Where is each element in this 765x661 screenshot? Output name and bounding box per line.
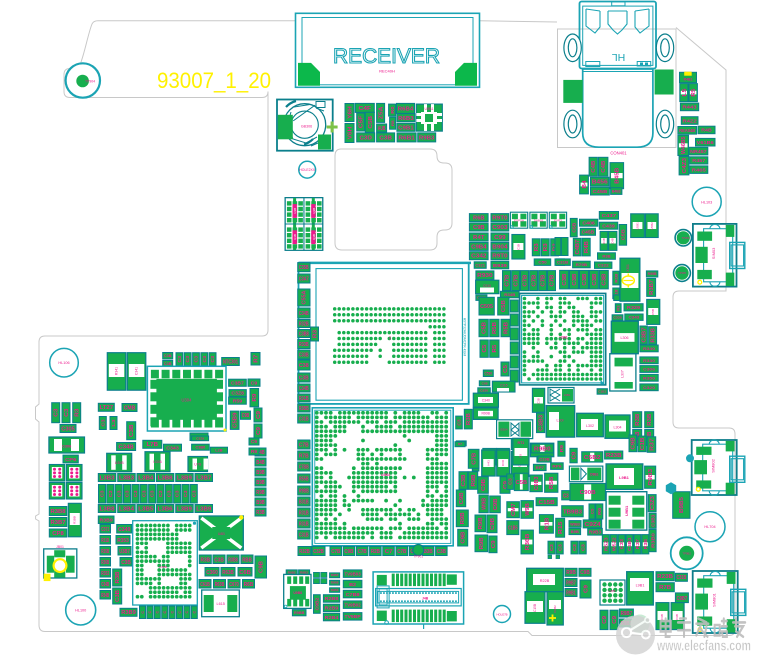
svg-text:L3B9: L3B9 [196, 506, 211, 512]
svg-text:R63B: R63B [215, 582, 225, 588]
svg-text:R1B: R1B [544, 518, 550, 531]
svg-text:C3: C3 [177, 355, 182, 362]
svg-text:C9: C9 [602, 616, 608, 624]
svg-text:SIM802: SIM802 [710, 458, 715, 473]
svg-text:C3: C3 [185, 355, 190, 362]
svg-text:C4Z3: C4Z3 [682, 158, 688, 174]
svg-text:C3: C3 [101, 419, 107, 427]
svg-text:R9B: R9B [471, 474, 477, 486]
svg-text:C7B: C7B [472, 453, 478, 465]
svg-text:Z5A: Z5A [379, 107, 385, 120]
svg-text:R3: R3 [313, 330, 319, 338]
svg-text:C5B2: C5B2 [584, 455, 601, 461]
svg-text:R5: R5 [492, 345, 498, 353]
svg-text:R7: R7 [458, 442, 463, 446]
svg-text:R3BB: R3BB [299, 406, 309, 412]
svg-text:CON401: CON401 [610, 151, 627, 156]
svg-text:L7B: L7B [147, 442, 159, 448]
svg-text:C343: C343 [629, 316, 640, 320]
svg-text:C5B: C5B [368, 116, 374, 129]
svg-text:C3: C3 [194, 355, 199, 362]
svg-text:C3B: C3B [602, 238, 606, 244]
svg-text:R7B: R7B [659, 585, 671, 591]
svg-text:U4B4: U4B4 [381, 473, 390, 477]
svg-text:C34B: C34B [101, 582, 109, 588]
svg-text:R9B7: R9B7 [621, 611, 633, 617]
svg-text:C9B: C9B [493, 498, 499, 510]
svg-text:C321: C321 [475, 264, 485, 268]
svg-text:R31B: R31B [299, 522, 309, 528]
svg-text:B9B: B9B [256, 500, 265, 506]
svg-text:C32B: C32B [313, 549, 324, 555]
svg-text:B9B: B9B [256, 470, 265, 476]
svg-text:U3B: U3B [293, 234, 297, 240]
svg-text:C3B: C3B [214, 557, 224, 563]
svg-text:C306: C306 [643, 367, 656, 372]
svg-text:R4B: R4B [701, 128, 712, 133]
svg-text:C9: C9 [256, 427, 262, 435]
svg-text:R457: R457 [692, 158, 706, 163]
svg-text:C19B: C19B [539, 457, 550, 461]
svg-text:R32B: R32B [299, 321, 309, 327]
svg-text:C340: C340 [482, 399, 490, 403]
svg-text:W46B5: W46B5 [681, 137, 687, 154]
svg-text:U306: U306 [153, 460, 162, 464]
svg-text:C3: C3 [557, 544, 562, 551]
svg-text:RT1: RT1 [518, 441, 525, 445]
svg-text:B4: B4 [582, 180, 588, 188]
svg-text:REA04B: REA04B [679, 128, 696, 134]
svg-text:R37: R37 [635, 539, 640, 550]
svg-text:R9B: R9B [478, 517, 484, 529]
svg-text:R3B: R3B [635, 414, 641, 426]
svg-text:B456: B456 [592, 180, 608, 186]
svg-text:C3B: C3B [517, 244, 521, 250]
svg-text:HOLE2XX: HOLE2XX [299, 168, 315, 172]
svg-text:R55B: R55B [299, 477, 309, 483]
svg-text:L3B6: L3B6 [158, 506, 173, 512]
svg-text:RECEIVER: RECEIVER [333, 44, 440, 68]
svg-text:C9B: C9B [675, 614, 679, 620]
svg-text:R2B4: R2B4 [325, 615, 339, 620]
svg-text:B4B: B4B [256, 460, 265, 466]
svg-text:TP305: TP305 [678, 271, 686, 275]
svg-text:W9B: W9B [525, 503, 531, 516]
svg-text:C9B: C9B [461, 531, 467, 543]
svg-text:R8: R8 [391, 120, 395, 126]
svg-text:R3B: R3B [643, 538, 648, 549]
svg-text:C3: C3 [166, 490, 171, 497]
svg-text:U9B1: U9B1 [425, 107, 434, 111]
svg-text:C7B: C7B [522, 274, 528, 286]
svg-text:C343: C343 [166, 445, 179, 450]
svg-text:C: C [185, 610, 189, 613]
svg-text:C5B: C5B [621, 229, 627, 241]
svg-text:C9B: C9B [344, 549, 353, 555]
svg-text:B3B: B3B [424, 549, 433, 555]
svg-text:C61B: C61B [200, 582, 210, 588]
svg-text:C5F: C5F [359, 115, 365, 128]
svg-text:R4T: R4T [473, 235, 486, 241]
svg-text:R341: R341 [114, 367, 118, 375]
svg-text:C9: C9 [251, 439, 258, 444]
svg-text:C5B: C5B [501, 300, 507, 312]
svg-text:R79B: R79B [576, 263, 588, 267]
svg-text:C360: C360 [206, 570, 218, 576]
svg-text:C9B: C9B [631, 437, 637, 449]
svg-text:C3: C3 [210, 355, 215, 362]
svg-text:C9B: C9B [481, 479, 487, 491]
svg-text:C7B8: C7B8 [346, 592, 360, 597]
svg-text:R15: R15 [558, 522, 564, 535]
svg-text:HL106: HL106 [58, 361, 69, 365]
svg-text:C670: C670 [229, 582, 239, 588]
svg-text:C4B: C4B [601, 161, 607, 173]
svg-text:R9B3: R9B3 [589, 529, 602, 534]
svg-text:R340: R340 [643, 346, 656, 351]
svg-text:C338: C338 [613, 316, 622, 320]
svg-text:C3B: C3B [602, 273, 608, 285]
svg-text:RP6: RP6 [552, 464, 562, 469]
svg-text:U3B: U3B [312, 234, 316, 240]
svg-text:R5: R5 [691, 89, 697, 97]
svg-text:C55A: C55A [302, 290, 308, 304]
svg-text:C9B1: C9B1 [398, 125, 414, 131]
svg-text:TV9B02: TV9B02 [345, 602, 361, 607]
svg-text:R6B: R6B [473, 216, 485, 222]
svg-text:C5: C5 [482, 345, 488, 353]
svg-text:R465: R465 [692, 167, 706, 172]
svg-text:L9B1: L9B1 [564, 393, 571, 397]
svg-text:C3B: C3B [379, 136, 392, 142]
svg-text:V6H: V6H [348, 127, 354, 140]
svg-text:TP304: TP304 [682, 236, 690, 240]
svg-text:R9B3: R9B3 [419, 136, 435, 142]
svg-text:R9BB: R9BB [294, 611, 305, 615]
svg-text:C342: C342 [471, 254, 487, 260]
svg-text:C3B: C3B [164, 354, 172, 358]
svg-text:C341: C341 [134, 367, 138, 375]
svg-text:C3: C3 [108, 490, 113, 497]
svg-text:W9B3: W9B3 [570, 521, 580, 526]
svg-text:R0: R0 [390, 106, 396, 114]
svg-text:C3B: C3B [437, 549, 446, 555]
svg-text:C3: C3 [125, 490, 130, 497]
svg-text:C9: C9 [251, 380, 258, 385]
svg-text:R59: R59 [233, 398, 243, 403]
svg-text:R3B8: R3B8 [51, 509, 66, 515]
svg-text:C3: C3 [563, 493, 569, 499]
svg-text:C9B: C9B [242, 413, 250, 419]
svg-text:B2: B2 [349, 582, 356, 587]
svg-text:R9B7: R9B7 [331, 574, 339, 577]
svg-text:R9BB: R9BB [299, 489, 309, 495]
svg-text:C3: C3 [54, 409, 60, 417]
svg-text:C322: C322 [598, 264, 609, 268]
svg-text:B904: B904 [492, 244, 507, 250]
svg-text:L30I: L30I [557, 419, 564, 423]
svg-text:R9T0: R9T0 [492, 254, 507, 260]
svg-text:L302: L302 [586, 424, 594, 428]
svg-text:R31B: R31B [299, 396, 309, 402]
svg-text:C4B: C4B [611, 238, 615, 244]
svg-text:R90B: R90B [481, 412, 490, 416]
svg-text:B9B: B9B [256, 480, 265, 486]
svg-text:R3B8: R3B8 [228, 557, 238, 563]
svg-text:R31D: R31D [101, 538, 109, 544]
svg-text:C9: C9 [571, 452, 577, 460]
svg-text:L3B4: L3B4 [119, 506, 134, 512]
svg-text:R3B7: R3B7 [649, 280, 655, 295]
svg-text:C9B7: C9B7 [677, 596, 688, 602]
svg-text:RP7: RP7 [536, 466, 544, 470]
svg-text:R9B8: R9B8 [331, 582, 339, 585]
svg-text:R4B: R4B [584, 241, 590, 253]
svg-text:C9: C9 [612, 616, 618, 624]
svg-text:C15B: C15B [539, 500, 555, 506]
svg-text:R3B9: R3B9 [121, 610, 136, 616]
svg-text:TB9B3: TB9B3 [563, 509, 582, 515]
svg-text:C3B3: C3B3 [650, 514, 656, 526]
svg-text:R3: R3 [543, 243, 549, 251]
svg-text:TP9B2: TP9B2 [682, 552, 691, 556]
svg-text:C: C [163, 610, 167, 613]
svg-text:C9: C9 [518, 454, 522, 458]
svg-text:C930: C930 [480, 388, 488, 392]
svg-text:TP904: TP904 [85, 80, 95, 84]
svg-text:R9B: R9B [460, 512, 466, 524]
svg-text:R9B1: R9B1 [566, 590, 576, 596]
svg-text:C7B: C7B [549, 274, 555, 286]
svg-text:L304: L304 [614, 426, 622, 430]
svg-text:C3B: C3B [461, 474, 467, 486]
svg-text:D9B2: D9B2 [553, 605, 557, 613]
svg-text:C3A7: C3A7 [299, 277, 309, 283]
svg-text:C3B: C3B [592, 273, 598, 285]
svg-text:C5B9: C5B9 [233, 412, 239, 427]
svg-text:R4B1: R4B1 [684, 78, 693, 82]
svg-text:SIM801: SIM801 [711, 592, 716, 607]
svg-text:C7B: C7B [532, 274, 538, 286]
svg-text:J4B: J4B [422, 596, 429, 600]
svg-text:CM7: CM7 [511, 503, 517, 516]
svg-text:C3: C3 [175, 490, 180, 497]
svg-text:C3: C3 [508, 478, 513, 485]
svg-text:C: C [193, 610, 197, 613]
svg-text:L3: L3 [111, 419, 117, 427]
svg-text:HL704: HL704 [704, 525, 715, 529]
svg-text:C3: C3 [202, 355, 207, 362]
svg-text:B45B: B45B [615, 167, 621, 183]
svg-text:U3BB: U3BB [159, 565, 167, 569]
svg-text:R3: R3 [534, 243, 540, 251]
svg-text:R9B: R9B [479, 537, 485, 549]
svg-text:C7B: C7B [514, 274, 520, 286]
svg-text:R31B: R31B [299, 511, 309, 517]
svg-text:C34B: C34B [118, 444, 134, 450]
svg-text:TV9BP: TV9BP [345, 614, 361, 619]
svg-text:L306: L306 [621, 336, 629, 340]
svg-text:DVD: DVD [501, 459, 505, 466]
svg-text:R6B4: R6B4 [398, 107, 414, 113]
svg-text:U3B: U3B [293, 208, 297, 214]
svg-text:R33B: R33B [651, 328, 657, 343]
svg-text:CP6: CP6 [65, 457, 76, 463]
svg-text:B9B5: B9B5 [679, 497, 685, 513]
svg-text:R99B: R99B [648, 272, 658, 276]
svg-text:C9: C9 [583, 585, 589, 593]
svg-text:LT27: LT27 [100, 405, 114, 411]
svg-text:C936: C936 [483, 284, 491, 288]
svg-text:CMB: CMB [124, 405, 136, 411]
svg-text:C: C [156, 610, 160, 613]
svg-text:EVP5A: EVP5A [514, 219, 524, 223]
svg-text:C7B: C7B [397, 549, 406, 555]
svg-text:C3Z9: C3Z9 [196, 436, 204, 440]
svg-text:C90B: C90B [580, 490, 596, 496]
svg-text:R9T0: R9T0 [492, 216, 507, 222]
svg-text:R3: R3 [75, 409, 81, 417]
svg-text:C38: C38 [299, 363, 309, 369]
svg-text:NTC301: NTC301 [223, 359, 238, 365]
svg-text:C31B: C31B [299, 533, 309, 539]
svg-text:C9B2: C9B2 [314, 597, 319, 610]
svg-text:C903: C903 [492, 225, 507, 231]
svg-text:U30B: U30B [115, 461, 125, 465]
svg-text:R350: R350 [643, 375, 656, 380]
svg-text:C5B: C5B [571, 222, 576, 233]
svg-text:R23B: R23B [606, 453, 622, 459]
svg-text:B304: B304 [500, 428, 507, 432]
svg-text:L615: L615 [216, 602, 224, 606]
svg-text:C9B4: C9B4 [471, 244, 487, 250]
svg-text:C15B: C15B [533, 604, 537, 612]
svg-text:L3B7: L3B7 [196, 475, 211, 481]
svg-text:H43: H43 [486, 460, 490, 466]
svg-text:L9B1: L9B1 [619, 475, 630, 480]
svg-text:U8B: U8B [218, 532, 226, 536]
svg-text:R5B: R5B [549, 477, 555, 490]
svg-text:L307: L307 [621, 370, 625, 378]
svg-text:C31B: C31B [677, 575, 687, 581]
svg-text:W5Z2: W5Z2 [611, 537, 616, 551]
svg-text:NR457: NR457 [690, 149, 707, 155]
svg-text:U3B7: U3B7 [119, 549, 130, 555]
svg-text:C7BB: C7BB [299, 465, 309, 471]
svg-text:R5Z3: R5Z3 [603, 537, 608, 551]
svg-text:C3B7: C3B7 [231, 380, 244, 385]
svg-text:L9B1: L9B1 [636, 584, 645, 588]
svg-text:C3: C3 [549, 544, 554, 551]
svg-text:C31B: C31B [557, 261, 568, 265]
svg-text:R3B7: R3B7 [51, 520, 66, 526]
svg-text:GB306: GB306 [301, 125, 312, 129]
svg-text:R22B: R22B [540, 579, 550, 583]
svg-text:C371: C371 [101, 527, 109, 533]
svg-text:C3B0: C3B0 [196, 445, 206, 449]
svg-text:C3: C3 [64, 409, 70, 417]
svg-text:C315: C315 [500, 384, 508, 388]
svg-text:C437: C437 [602, 213, 617, 219]
svg-text:C1B5: C1B5 [508, 526, 518, 532]
svg-text:R9: R9 [252, 394, 258, 402]
svg-text:B939: B939 [493, 263, 507, 268]
svg-text:H9TP32A8JDMCPR-KGM: H9TP32A8JDMCPR-KGM [463, 318, 467, 357]
svg-text:www.elecfans.com: www.elecfans.com [656, 639, 751, 655]
svg-text:Y6H: Y6H [348, 106, 354, 119]
svg-text:C3D: C3D [359, 136, 372, 142]
svg-text:R9B: R9B [256, 490, 265, 496]
svg-text:C439: C439 [602, 223, 615, 228]
svg-text:C50: C50 [538, 261, 546, 265]
svg-text:L3B3: L3B3 [119, 475, 134, 481]
svg-text:TV9B03: TV9B03 [345, 571, 361, 576]
svg-text:C3B: C3B [562, 273, 568, 285]
svg-text:R34B: R34B [504, 293, 515, 297]
svg-text:C3B: C3B [582, 273, 588, 285]
svg-text:C3Z3: C3Z3 [650, 496, 656, 510]
svg-text:R6B1: R6B1 [398, 136, 415, 142]
svg-text:HL: HL [612, 51, 626, 63]
svg-text:R35B: R35B [101, 549, 109, 555]
svg-text:RBB: RBB [242, 557, 252, 563]
svg-text:R7: R7 [253, 355, 259, 363]
svg-text:C305: C305 [61, 426, 75, 432]
svg-text:L3B8: L3B8 [100, 506, 115, 512]
svg-text:R1B: R1B [613, 273, 618, 282]
svg-text:C3: C3 [100, 490, 105, 497]
svg-text:R3BB: R3BB [73, 516, 77, 524]
svg-text:U3B1: U3B1 [560, 336, 568, 340]
svg-text:U3B: U3B [312, 208, 316, 214]
svg-text:C306: C306 [62, 445, 71, 449]
svg-text:EVP3: EVP3 [554, 219, 562, 223]
svg-text:R353: R353 [117, 538, 129, 544]
svg-text:C1B: C1B [640, 438, 646, 451]
svg-text:C7B: C7B [331, 549, 340, 555]
svg-text:C3: C3 [183, 490, 188, 497]
svg-text:C33B: C33B [299, 353, 309, 359]
svg-text:SIM03: SIM03 [711, 247, 716, 259]
svg-text:R6B: R6B [244, 582, 254, 588]
svg-text:L3B9: L3B9 [177, 475, 192, 481]
svg-text:C3B: C3B [129, 424, 135, 437]
svg-text:U7B: U7B [194, 463, 202, 467]
svg-text:C45B: C45B [582, 229, 595, 234]
svg-text:R37: R37 [649, 438, 655, 451]
svg-text:C5B: C5B [482, 322, 488, 334]
svg-text:L3B3: L3B3 [100, 475, 115, 481]
svg-text:R9B7: R9B7 [566, 580, 576, 586]
svg-text:C320: C320 [643, 385, 656, 390]
svg-text:L3B5: L3B5 [138, 506, 153, 512]
svg-text:V61B6: V61B6 [697, 140, 714, 146]
svg-text:R5B: R5B [492, 322, 498, 334]
svg-text:C9: C9 [491, 540, 497, 548]
svg-text:C7B: C7B [541, 274, 547, 286]
svg-text:C3B3: C3B3 [539, 415, 545, 431]
svg-text:C530: C530 [485, 372, 493, 376]
svg-text:C9B: C9B [490, 518, 496, 530]
svg-text:HL100: HL100 [75, 609, 86, 613]
svg-text:C: C [178, 610, 182, 613]
svg-text:R36B: R36B [101, 560, 109, 566]
svg-text:C7B: C7B [504, 274, 510, 286]
svg-text:C34B: C34B [299, 386, 309, 392]
svg-text:R3B: R3B [602, 255, 611, 259]
svg-text:C9: C9 [590, 509, 594, 515]
svg-text:R3B: R3B [647, 414, 653, 426]
